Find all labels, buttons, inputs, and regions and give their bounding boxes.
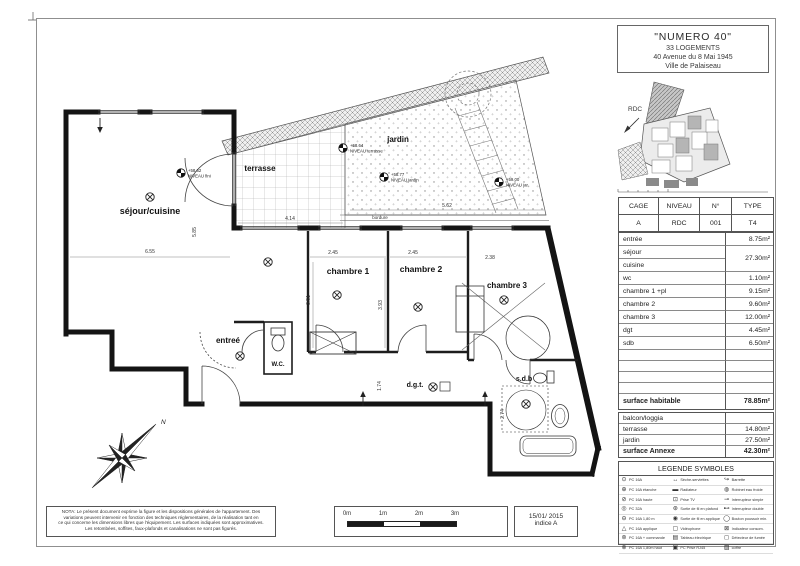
wall-outlet-icon: ◉ [670,515,680,523]
svg-text:NIVEAU fini: NIVEAU fini [188,174,211,179]
table-row-empty [619,350,773,361]
north-compass: N [92,419,166,488]
legend-title: LEGENDE SYMBOLES [619,462,773,476]
svg-text:3.51: 3.51 [306,295,312,305]
project-name: "NUMERO 40" [618,31,768,43]
project-city: Ville de Palaiseau [618,63,768,70]
table-row: wc1.10m² [619,272,773,285]
garden-area [345,80,546,215]
col-header-numero: N° [700,198,732,215]
room-label-sdb: s.d.b [516,376,532,383]
surface-habitable-row: surface habitable78.85m² [619,394,773,409]
svg-text:+59.00: +59.00 [506,177,520,182]
wc-tank [271,328,285,335]
svg-text:6.55: 6.55 [145,249,155,255]
legend-column-1: ⊙PC 16A ⊕PC 16A étanche ⊘PC 16A haute ◎P… [619,476,670,554]
table-row: balcon/loggia [619,413,773,424]
toilet-sdb [534,373,547,383]
socket-icon: ⊘ [619,496,629,504]
symbols-legend: LEGENDE SYMBOLES ⊙PC 16A ⊕PC 16A étanche… [618,461,774,545]
room-label-dgt: d.g.t. [407,382,424,389]
scale-bar-graphic [347,521,457,527]
legend-column-3: ↪Barrette ◍Robinet eau froide ⊸Interrupt… [722,476,773,554]
svg-text:+58.64: +58.64 [350,143,364,148]
project-address: 40 Avenue du 8 Mai 1945 [618,54,768,61]
rj45-icon: ▣ [670,544,680,552]
scale-tick-2: 2m [415,511,423,517]
site-plan-arrow-icon [624,126,631,134]
socket-icon: ◎ [619,505,629,513]
corner-registration-mark [28,12,36,20]
smoke-detector-icon: ◻ [722,534,732,542]
table-row: jardin27.50m² [619,435,773,446]
videophone-icon: ▢ [670,525,680,533]
turning-circle [506,316,550,360]
scale-tick-1: 1m [379,511,387,517]
bathtub [520,436,576,456]
radiator-icon: ▬ [670,486,680,494]
towel-radiator-icon: ↔ [670,476,680,484]
socket-icon: ⊚ [619,534,629,542]
interior-walls [234,231,578,374]
col-header-cage: CAGE [619,198,659,215]
table-row: séjour27.30m² [619,246,773,259]
svg-text:5.62: 5.62 [442,203,452,209]
switch-double-icon: ⊷ [722,505,732,513]
table-row: sdb6.50m² [619,337,773,350]
socket-icon: ⊗ [619,544,629,552]
duct-icon: ▨ [722,544,732,552]
table-row: cuisine [619,259,773,272]
table-row-empty [619,361,773,372]
plan-index: indice A [515,520,577,527]
scale-tick-0: 0m [343,511,351,517]
scale-bar: 0m 1m 2m 3m [334,506,508,537]
value-niveau: RDC [659,215,700,232]
dimension-labels: 6.55 5.85 4.14 5.62 2.45 2.45 2.38 3.51 … [145,203,506,419]
push-button-icon: ◯ [722,515,732,523]
meter-icon: ⊠ [722,525,732,533]
svg-text:NIVEAU jar.: NIVEAU jar. [506,183,529,188]
site-key-plan: RDC [618,82,768,192]
room-label-wc: W.C. [272,362,285,368]
room-label-chambre2: chambre 2 [400,264,443,274]
value-numero: 001 [700,215,732,232]
table-row: dgt4.45m² [619,324,773,337]
dgt-symbol-box [440,382,450,391]
ceiling-outlet-icon: ⊛ [670,505,680,513]
table-row-empty [619,383,773,394]
table-row: chambre 312.00m² [619,311,773,324]
table-row: chambre 1 +pl9.15m² [619,285,773,298]
surface-table: entrée8.75m² séjour27.30m² cuisine wc1.1… [618,232,774,410]
table-row: chambre 29.60m² [619,298,773,311]
annexe-table: balcon/loggia terrasse14.80m² jardin27.5… [618,412,774,458]
svg-text:+58.62: +58.62 [188,168,202,173]
curb-label: bordure [372,215,388,220]
legend-column-2: ↔Sèche-serviettes ▬Radiateur ⊡Prise TV ⊛… [670,476,721,554]
surface-annexe-row: surface Annexe42.30m² [619,446,773,457]
room-label-terrasse: terrasse [244,164,276,173]
value-cage: A [619,215,659,232]
table-row: entrée8.75m² [619,233,773,246]
svg-text:1.74: 1.74 [377,381,383,391]
value-type: T4 [732,215,774,232]
socket-icon: ⊖ [619,515,629,523]
svg-text:5.85: 5.85 [192,227,198,237]
svg-text:NIVEAU jardin: NIVEAU jardin [391,178,419,183]
unit-id-table: CAGE NIVEAU N° TYPE A RDC 001 T4 [618,197,774,232]
tv-outlet-icon: ⊡ [670,496,680,504]
scale-tick-3: 3m [451,511,459,517]
svg-text:2.45: 2.45 [408,250,418,256]
project-units: 33 LOGEMENTS [618,45,768,52]
room-label-sejour: séjour/cuisine [120,206,181,216]
plan-date: 15/01/ 2015 [515,513,577,520]
col-header-niveau: NIVEAU [659,198,700,215]
date-block: 15/01/ 2015 indice A [514,506,578,537]
socket-icon: △ [619,525,629,533]
tap-icon: ◍ [722,486,732,494]
switch-single-icon: ⊸ [722,496,732,504]
svg-text:2.74: 2.74 [500,409,506,419]
wc-bowl [272,335,284,351]
socket-icon: ⊕ [619,486,629,494]
electrical-panel-icon: ▤ [670,534,680,542]
room-label-chambre1: chambre 1 [327,266,370,276]
col-header-type: TYPE [732,198,774,215]
room-label-jardin: jardin [386,135,409,144]
site-plan-level-label: RDC [628,106,642,113]
svg-text:+58.77: +58.77 [391,172,405,177]
barrette-icon: ↪ [722,476,732,484]
svg-text:NIVEAU terrasse: NIVEAU terrasse [350,149,383,154]
north-label: N [161,419,166,426]
room-label-entree: entreé [216,336,241,345]
floor-plan-sheet: +58.62NIVEAU fini +58.64NIVEAU terrasse … [0,0,800,566]
bed [456,286,484,332]
table-row-empty [619,372,773,383]
nota-disclaimer: NOTA: Le présent document exprime la fig… [46,506,276,537]
room-label-chambre3: chambre 3 [487,281,528,290]
table-row: terrasse14.80m² [619,424,773,435]
socket-icon: ⊙ [619,476,629,484]
svg-text:2.38: 2.38 [485,255,495,261]
svg-text:4.14: 4.14 [285,216,295,222]
svg-text:3.93: 3.93 [378,300,384,310]
title-block: "NUMERO 40" 33 LOGEMENTS 40 Avenue du 8 … [617,25,769,73]
svg-text:2.45: 2.45 [328,250,338,256]
